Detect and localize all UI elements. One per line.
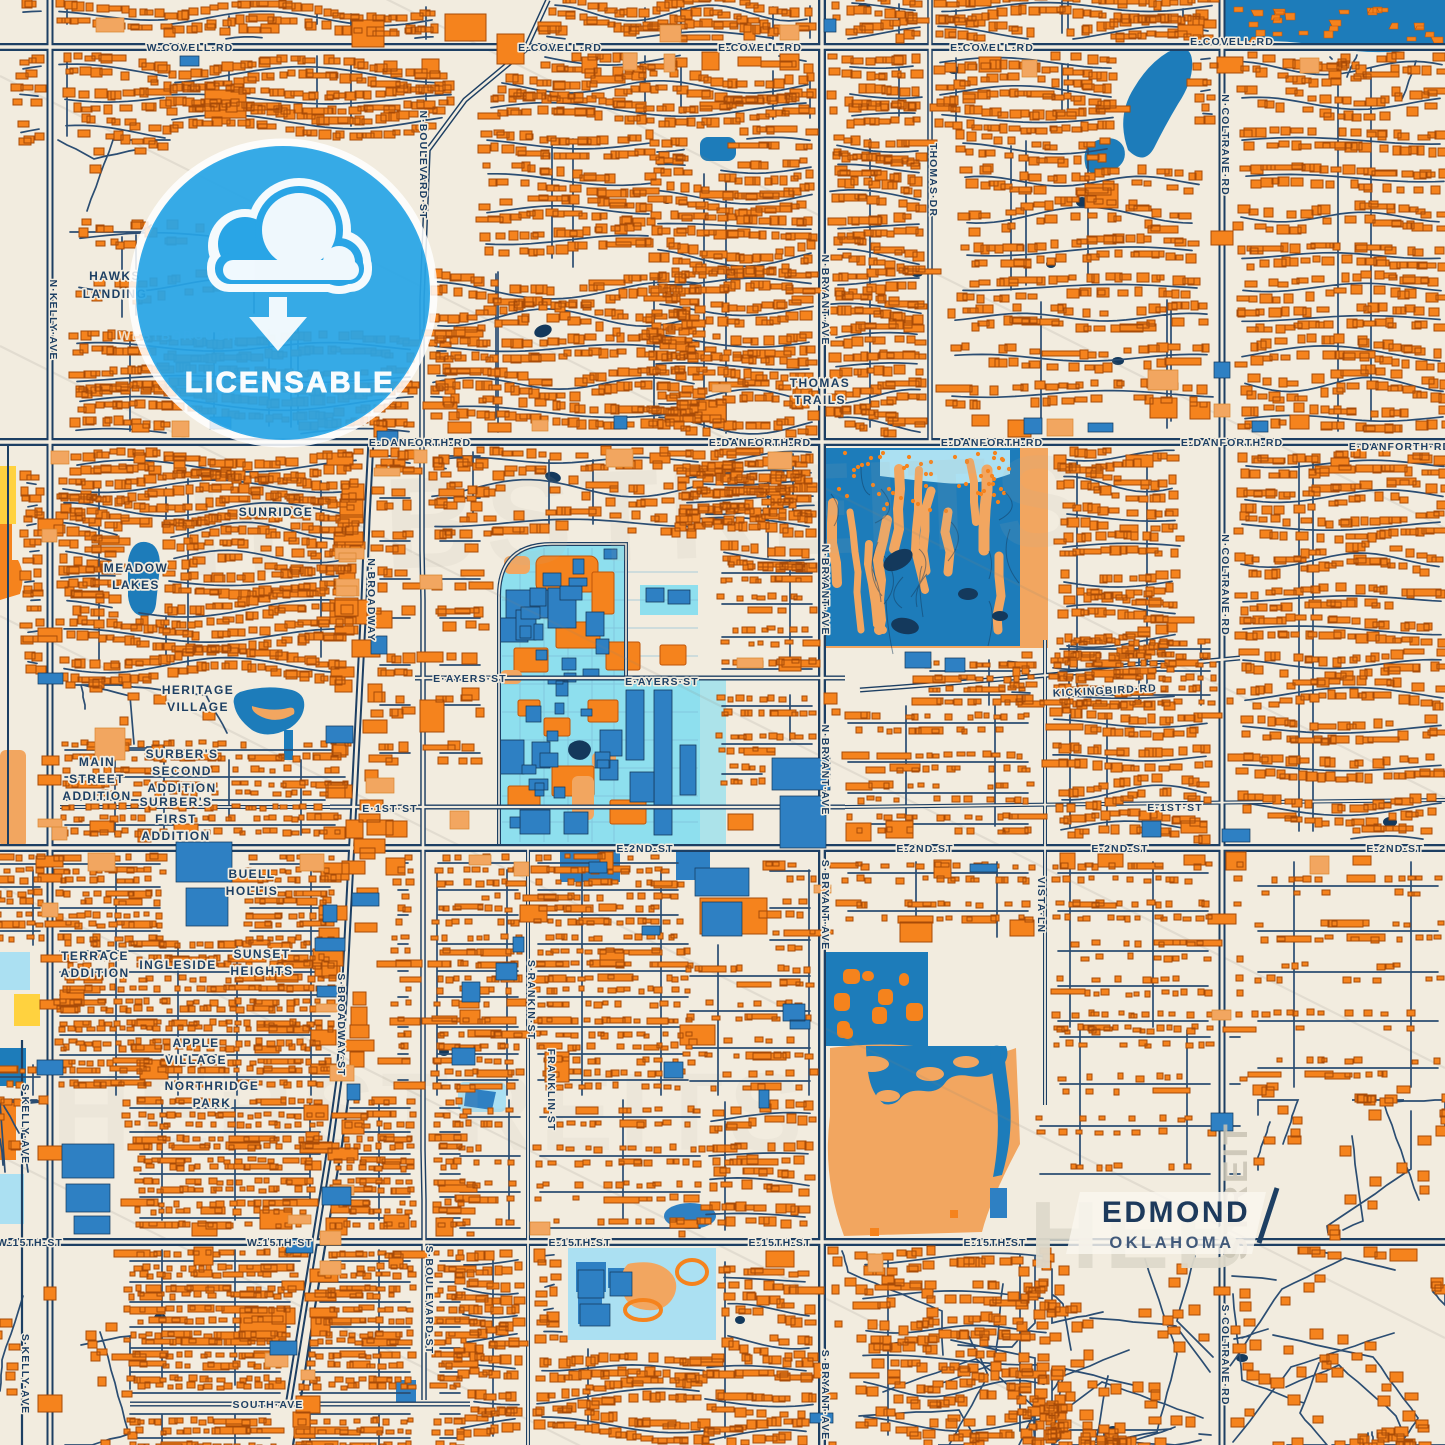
svg-text:N·BRYANT·AVE: N·BRYANT·AVE (819, 545, 831, 636)
svg-text:E·DANFORTH·RD: E·DANFORTH·RD (709, 437, 811, 449)
svg-text:SECOND: SECOND (152, 764, 212, 778)
svg-text:N·BRYANT·AVE: N·BRYANT·AVE (819, 725, 831, 816)
svg-text:E·COVELL·RD: E·COVELL·RD (950, 42, 1034, 54)
svg-text:THOMAS: THOMAS (790, 376, 850, 390)
svg-text:VILLAGE: VILLAGE (165, 1053, 227, 1067)
svg-text:S·BROADWAY·ST: S·BROADWAY·ST (335, 973, 347, 1076)
svg-text:LAKES: LAKES (112, 578, 160, 592)
svg-text:E·15TH·ST: E·15TH·ST (549, 1237, 612, 1249)
svg-text:E·COVELL·RD: E·COVELL·RD (518, 42, 602, 54)
svg-text:E·1ST·ST: E·1ST·ST (362, 803, 417, 815)
svg-text:E·AYERS·ST: E·AYERS·ST (433, 673, 507, 685)
svg-text:N·COLTRANE·RD: N·COLTRANE·RD (1219, 94, 1231, 196)
svg-text:E·15TH·ST: E·15TH·ST (964, 1237, 1027, 1249)
svg-text:S·BRYANT·AVE: S·BRYANT·AVE (819, 860, 831, 950)
svg-text:S·RANKIN·ST: S·RANKIN·ST (525, 960, 537, 1040)
svg-text:N·COLTRANE·RD: N·COLTRANE·RD (1219, 534, 1231, 636)
svg-text:HERITAGE: HERITAGE (162, 683, 234, 697)
svg-text:APPLE: APPLE (172, 1036, 219, 1050)
svg-text:ADDITION: ADDITION (147, 781, 216, 795)
svg-text:E·2ND·ST: E·2ND·ST (616, 843, 673, 855)
svg-text:SURBER'S: SURBER'S (146, 747, 219, 761)
svg-text:S·BRYANT·AVE: S·BRYANT·AVE (819, 1350, 831, 1440)
svg-text:E·DANFORTH·RD: E·DANFORTH·RD (1349, 441, 1445, 453)
svg-text:ADDITION: ADDITION (60, 966, 129, 980)
svg-text:E·2ND·ST: E·2ND·ST (896, 843, 953, 855)
svg-text:MEADOW: MEADOW (104, 561, 168, 575)
svg-text:S·KELLY·AVE: S·KELLY·AVE (19, 1334, 31, 1414)
svg-text:VILLAGE: VILLAGE (167, 700, 229, 714)
svg-text:TERRACE: TERRACE (61, 949, 129, 963)
svg-text:E·COVELL·RD: E·COVELL·RD (718, 42, 802, 54)
svg-text:PARK: PARK (193, 1096, 232, 1110)
svg-text:ADDITION: ADDITION (62, 789, 131, 803)
svg-text:E·DANFORTH·RD: E·DANFORTH·RD (369, 437, 471, 449)
svg-text:E·2ND·ST: E·2ND·ST (1366, 843, 1423, 855)
svg-text:FRANKLIN·ST: FRANKLIN·ST (545, 1049, 557, 1132)
svg-text:MAIN: MAIN (79, 755, 115, 769)
svg-text:S·COLTRANE·RD: S·COLTRANE·RD (1219, 1304, 1231, 1405)
svg-text:W·15TH·ST: W·15TH·ST (247, 1237, 313, 1249)
svg-text:E·AYERS·ST: E·AYERS·ST (625, 676, 699, 688)
svg-text:HEIGHTS: HEIGHTS (230, 964, 293, 978)
svg-text:ADDITION: ADDITION (141, 829, 210, 843)
svg-text:STREET: STREET (69, 772, 125, 786)
svg-text:VISTA·LN: VISTA·LN (1035, 877, 1047, 933)
svg-text:FIRST: FIRST (155, 812, 197, 826)
svg-text:E·1ST·ST: E·1ST·ST (1147, 802, 1202, 814)
svg-text:INGLESIDE: INGLESIDE (139, 958, 216, 972)
svg-text:HOLLIS: HOLLIS (226, 884, 278, 898)
svg-text:E·DANFORTH·RD: E·DANFORTH·RD (941, 437, 1043, 449)
svg-text:SUNRIDGE: SUNRIDGE (239, 505, 314, 519)
svg-text:EDMOND: EDMOND (1102, 1196, 1250, 1229)
svg-text:S·BOULEVARD·ST: S·BOULEVARD·ST (423, 1246, 435, 1355)
svg-text:N·KELLY·AVE: N·KELLY·AVE (47, 280, 59, 361)
svg-text:LICENSABLE: LICENSABLE (185, 367, 395, 399)
svg-text:E·15TH·ST: E·15TH·ST (749, 1237, 812, 1249)
svg-text:E·DANFORTH·RD: E·DANFORTH·RD (1181, 437, 1283, 449)
svg-text:SUNSET: SUNSET (233, 947, 290, 961)
svg-text:N·BROADWAY: N·BROADWAY (365, 558, 377, 642)
svg-text:BUELL: BUELL (229, 867, 276, 881)
svg-text:THOMAS·DR: THOMAS·DR (927, 143, 939, 217)
svg-text:E·2ND·ST: E·2ND·ST (1091, 843, 1148, 855)
svg-text:W·COVELL·RD: W·COVELL·RD (147, 42, 234, 54)
svg-text:SURBER'S: SURBER'S (140, 795, 213, 809)
svg-text:TRAILS: TRAILS (794, 393, 846, 407)
svg-text:E·COVELL·RD: E·COVELL·RD (1190, 36, 1274, 48)
svg-text:SOUTH·AVE: SOUTH·AVE (233, 1399, 304, 1411)
svg-text:OKLAHOMA: OKLAHOMA (1109, 1234, 1234, 1252)
svg-text:W·15TH·ST: W·15TH·ST (0, 1237, 63, 1249)
svg-text:N·BOULEVARD·ST: N·BOULEVARD·ST (417, 110, 429, 219)
svg-text:NORTHRIDGE: NORTHRIDGE (165, 1079, 260, 1093)
svg-text:S·KELLY·AVE: S·KELLY·AVE (19, 1084, 31, 1164)
svg-text:N·BRYANT·AVE: N·BRYANT·AVE (819, 255, 831, 346)
